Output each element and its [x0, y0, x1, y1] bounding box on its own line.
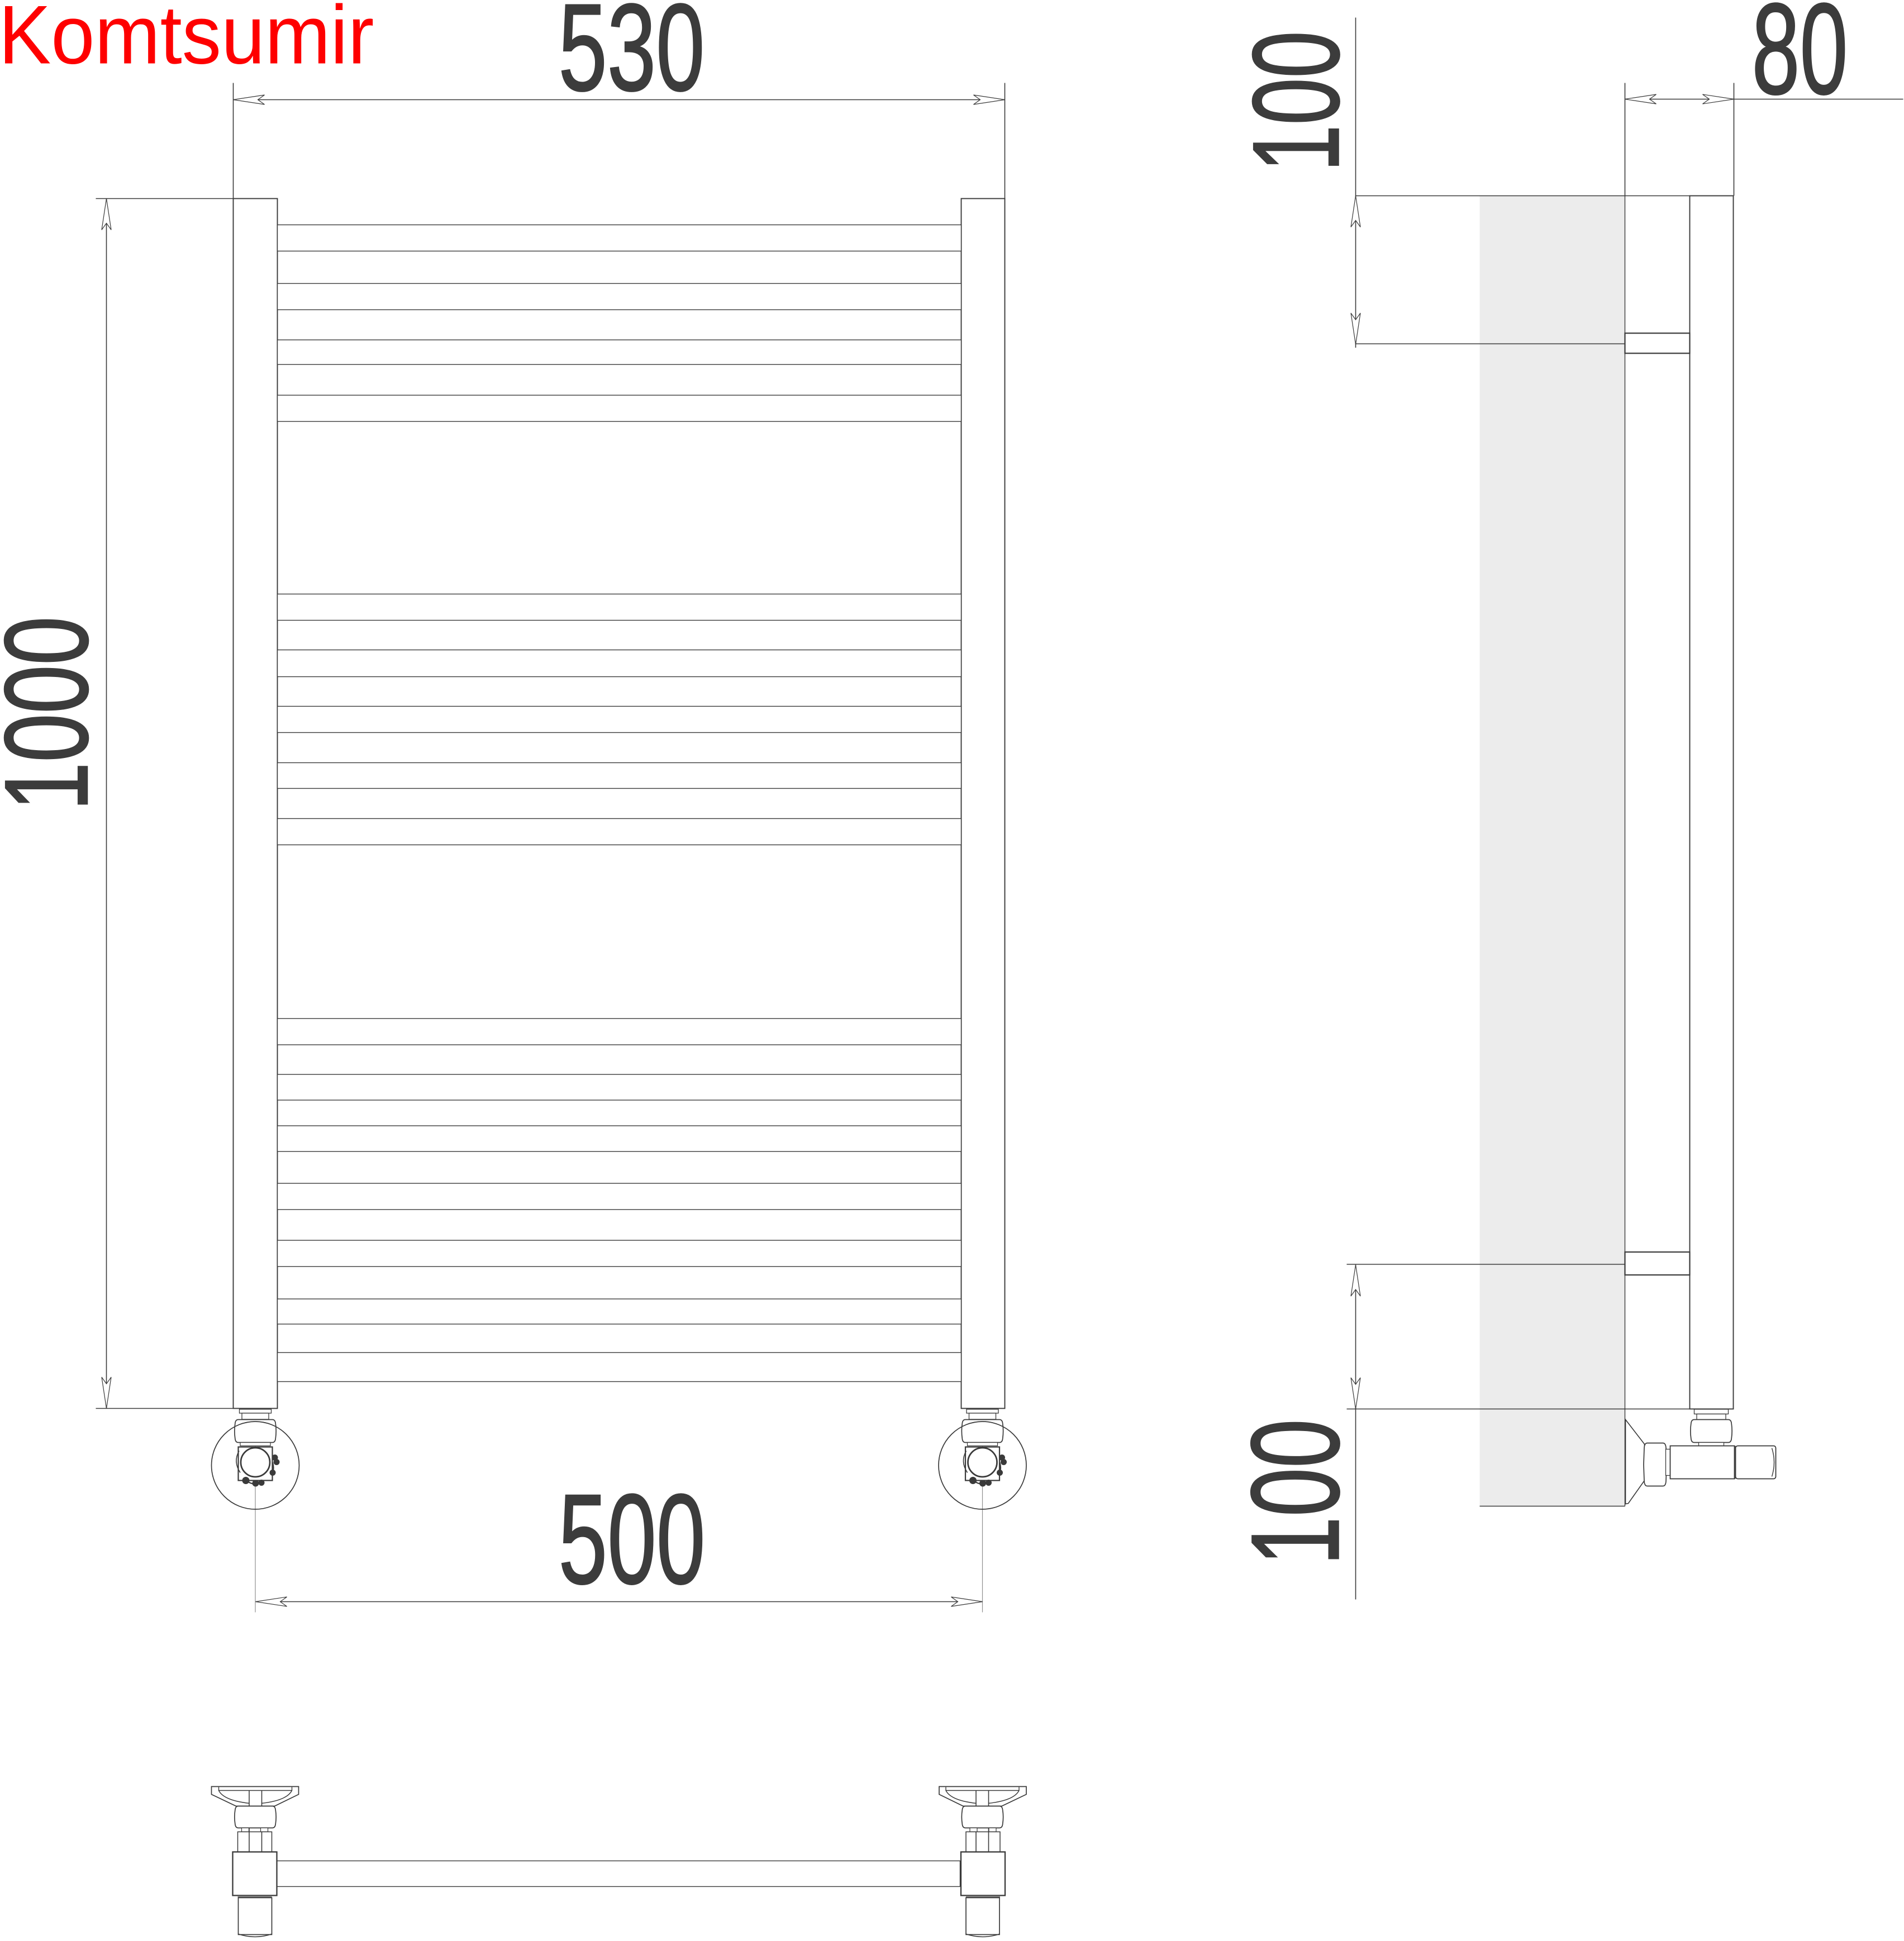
svg-text:Komtsumir: Komtsumir: [0, 0, 374, 82]
svg-text:100: 100: [1226, 1419, 1365, 1566]
svg-text:80: 80: [1752, 0, 1848, 122]
svg-text:530: 530: [559, 0, 705, 117]
svg-text:500: 500: [559, 1468, 706, 1611]
svg-text:1000: 1000: [0, 617, 112, 811]
svg-text:100: 100: [1227, 31, 1365, 172]
